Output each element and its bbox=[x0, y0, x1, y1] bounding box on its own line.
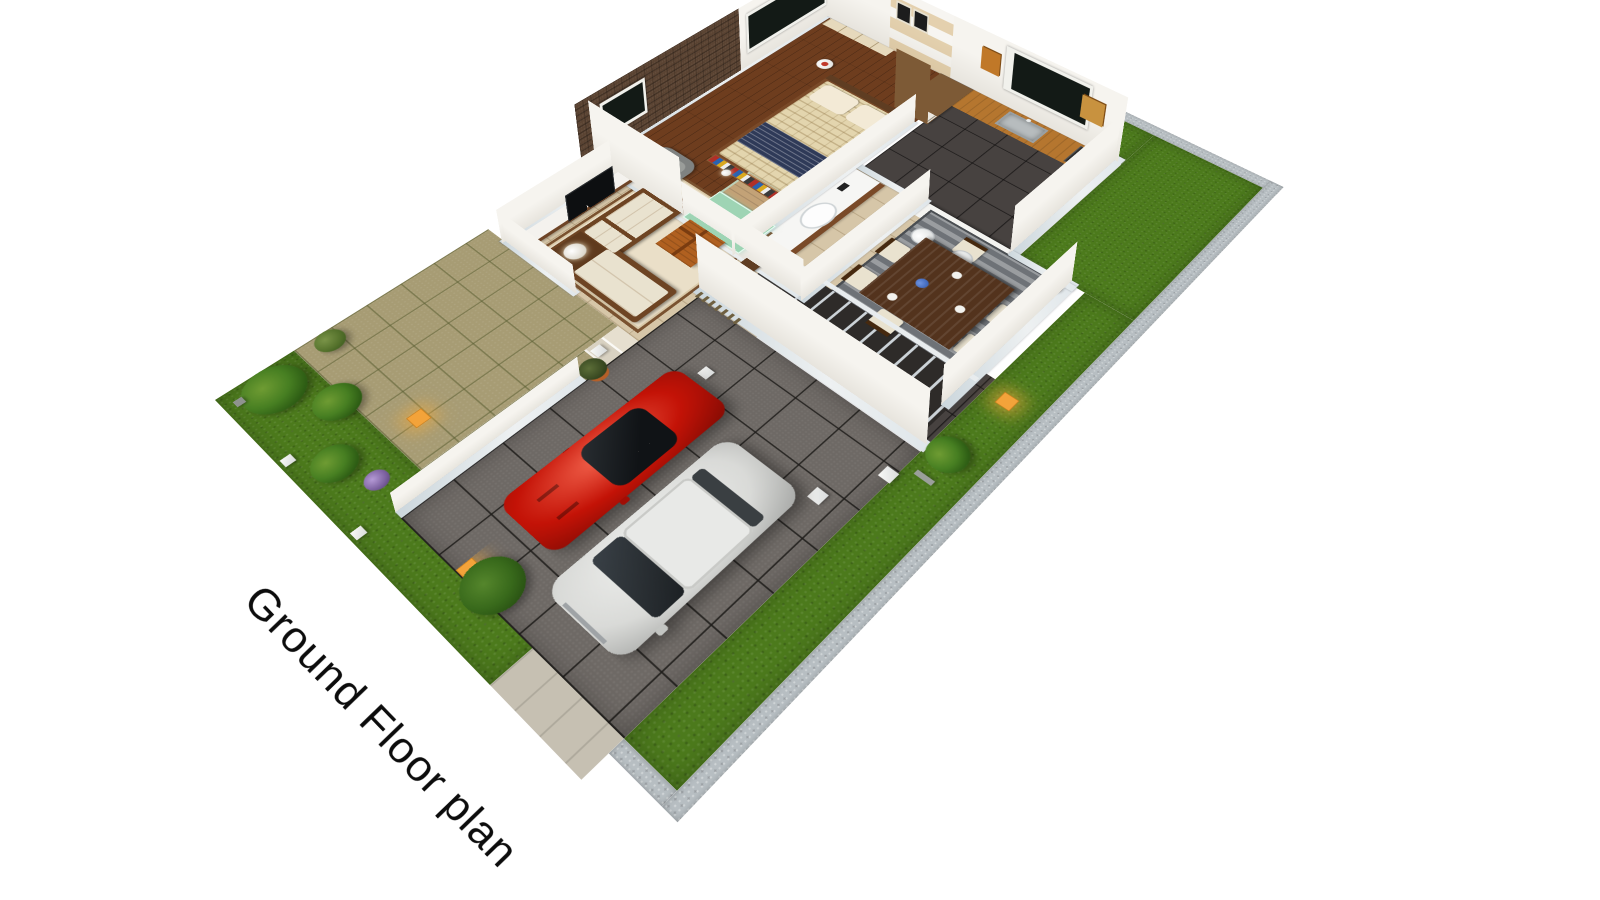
hood-vent bbox=[556, 501, 579, 520]
floorplan-stage bbox=[0, 0, 1600, 900]
kitchen-wall-cabinet bbox=[981, 46, 1001, 77]
side-mirror bbox=[558, 444, 570, 454]
hood-vent bbox=[536, 484, 559, 502]
